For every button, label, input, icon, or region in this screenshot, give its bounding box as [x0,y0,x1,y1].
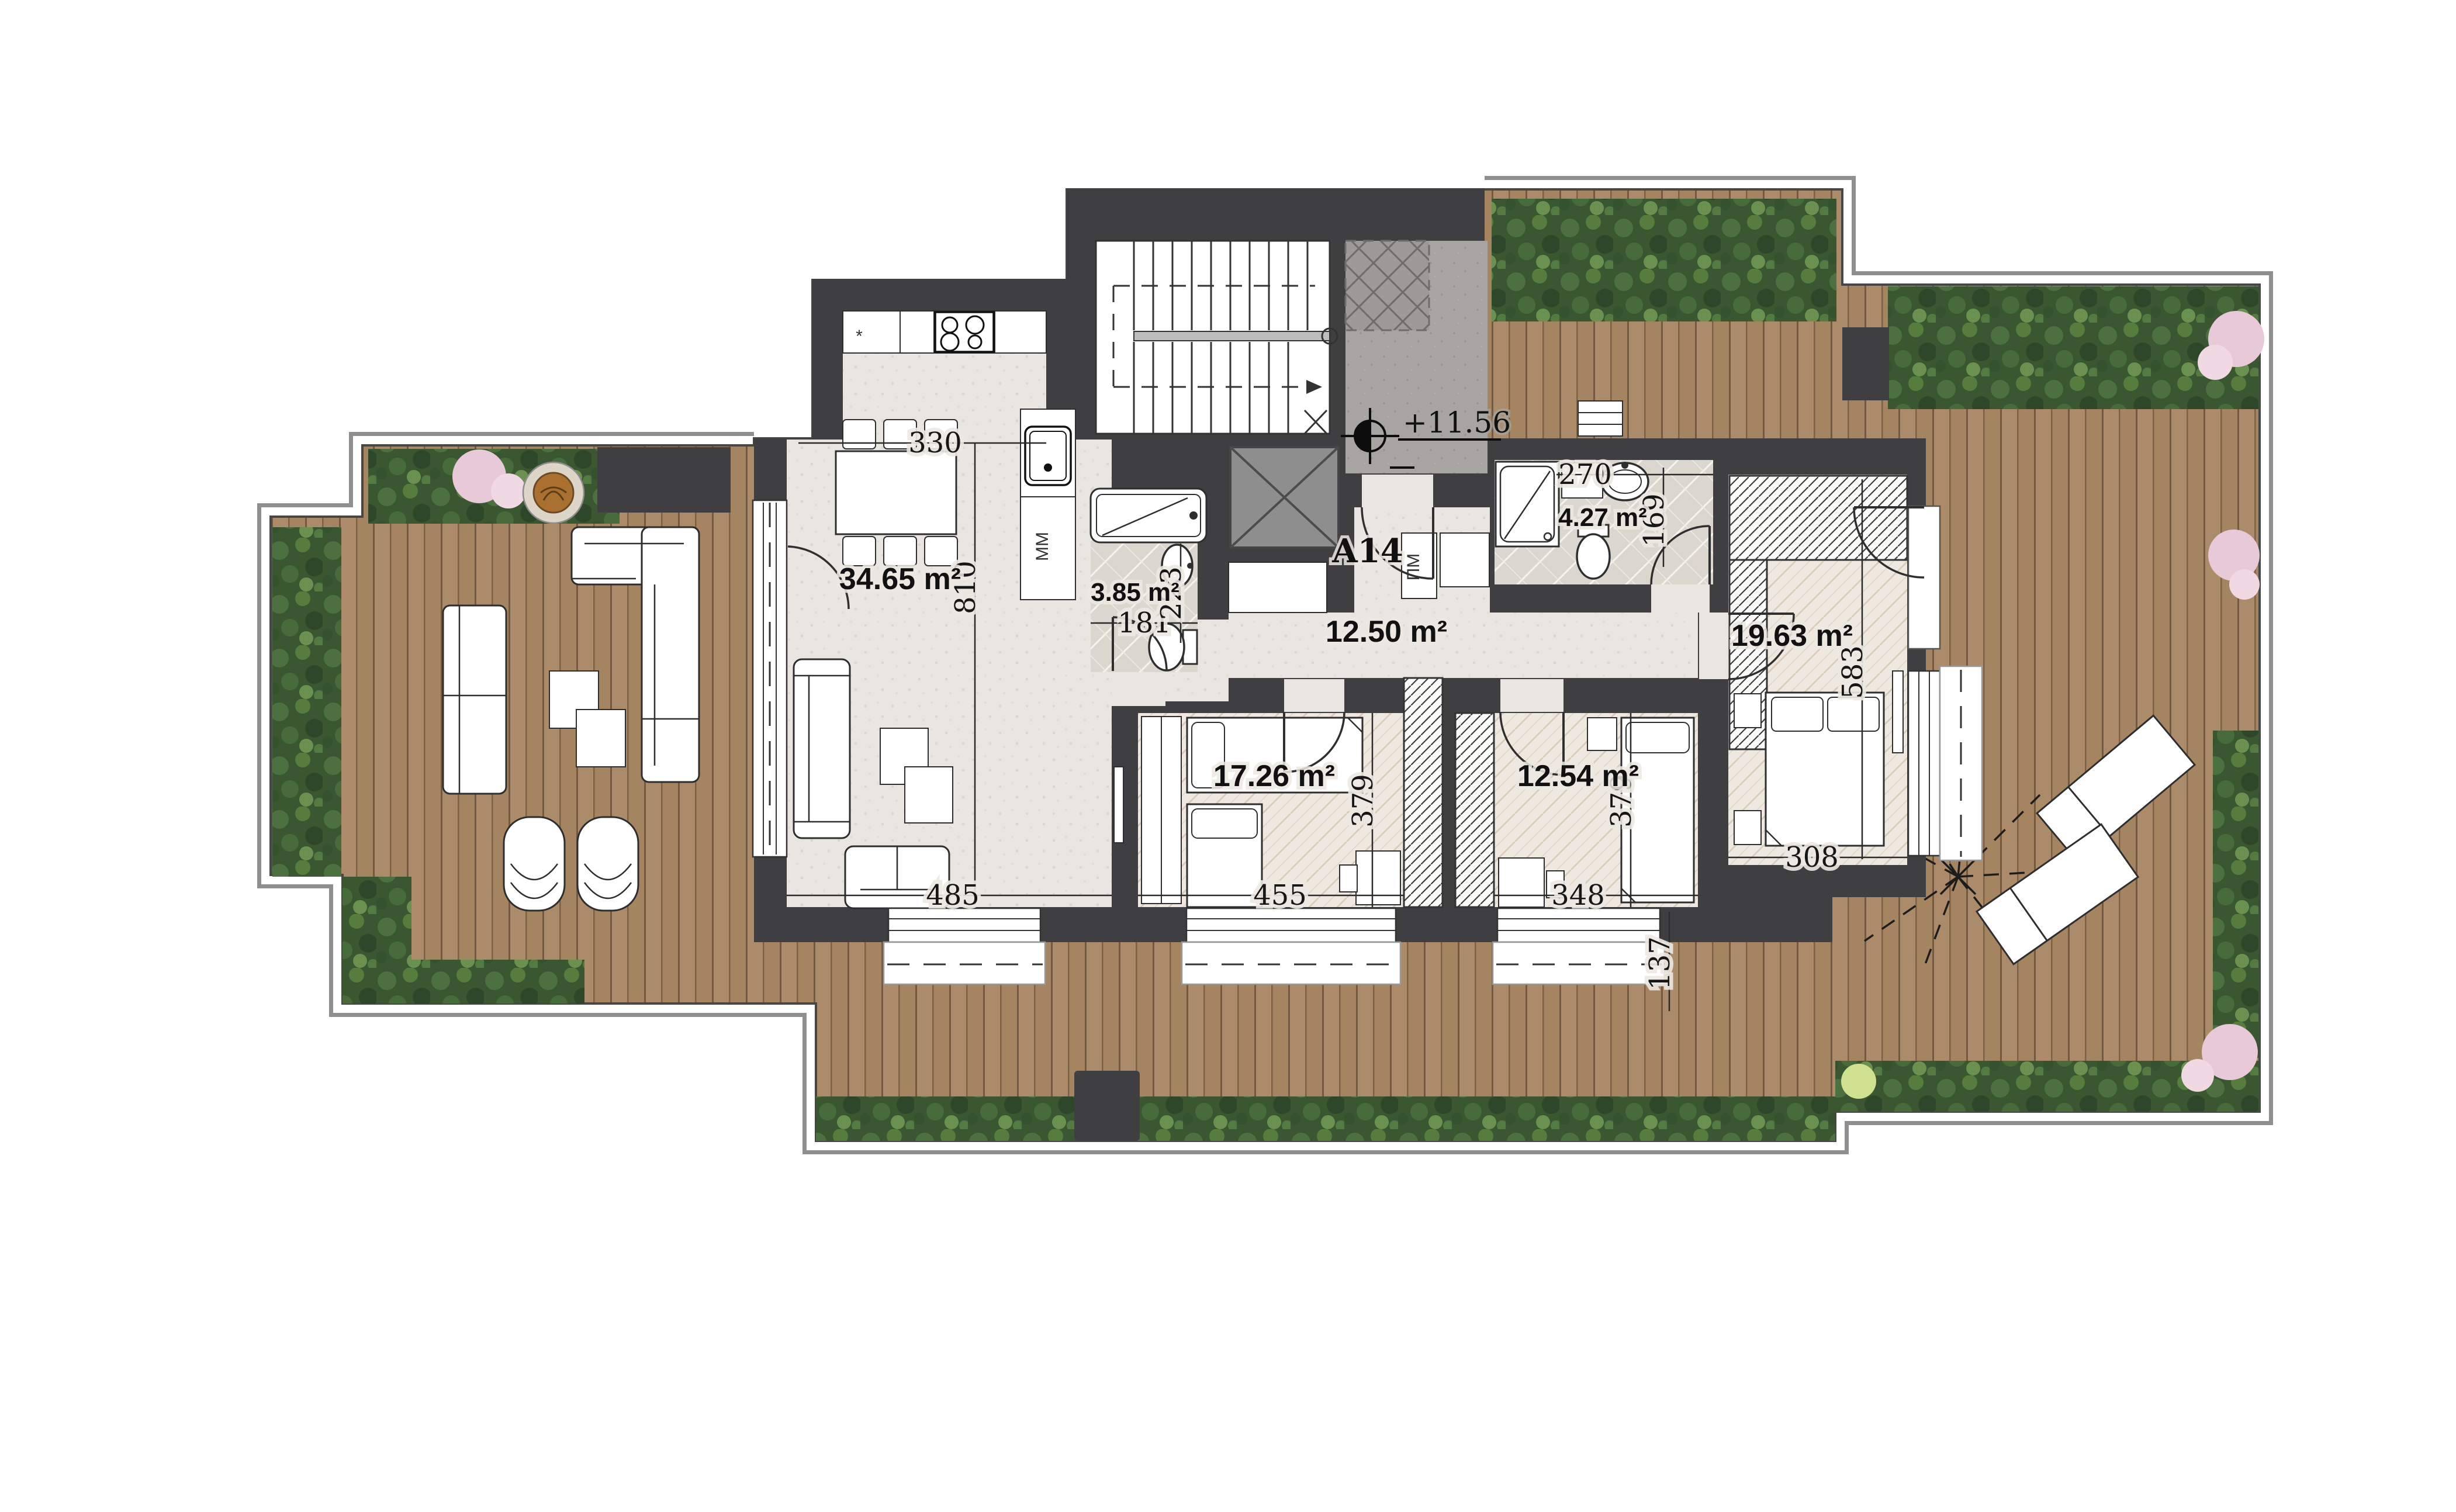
elevator [1230,447,1338,548]
label-bath1-area: 3.85 m² [1091,578,1179,607]
label-bath2-area: 4.27 m² [1558,503,1647,532]
bath2-toilet [1577,525,1610,579]
tv-panel [1114,767,1123,843]
stove-mark: * [856,327,863,346]
dim-master-width: 308 [1785,841,1839,874]
hedge-left-bottom [343,877,411,1004]
lounge-chair-1 [504,817,565,911]
window-bedroom1 [1182,908,1400,984]
hedge-left-corner [409,960,584,1004]
label-bed1-area: 17.26 m² [1213,759,1335,793]
elevator-closet [1229,562,1327,613]
hedge-top-right [1888,286,2260,409]
dishwasher-label: ММ [1033,532,1052,561]
floor-plan-drawing: +11.56 * ММ [0,0,2456,1512]
wardrobe-master-top [1729,476,1907,560]
label-bed2-area: 12.54 m² [1517,759,1639,793]
deck-bench [1578,401,1623,436]
kitchen-sink [1025,427,1071,485]
dim-living-width: 485 [926,879,980,912]
living-sofa-large [794,659,850,838]
bathtub [1091,489,1206,542]
living-coffee-table-2 [905,767,953,823]
shower [1496,462,1559,546]
window-bedroom2 [1493,908,1665,984]
lounge-chair-2 [577,817,638,911]
dim-bed1-width: 455 [1253,879,1307,912]
wardrobe-bed1 [1404,678,1443,907]
hall-closet [1440,533,1489,587]
label-apartment: A14 [1331,532,1403,570]
dim-kitchen-width: 330 [908,427,962,459]
shaft-hatch [1345,241,1429,330]
kitchen-counter: * [843,311,1046,353]
elevation-label: +11.56 [1403,406,1511,440]
dim-window-offset: 137 [1644,936,1676,990]
fire-pit [523,462,584,523]
dim-master-depth: 583 [1836,645,1869,699]
dim-bed1-depth: 379 [1347,774,1379,828]
label-hall-area: 12.50 m² [1326,615,1447,649]
hedge-left [272,527,341,877]
kitchen-appliance-column: ММ [1021,409,1075,600]
label-living-area: 34.65 m² [839,562,961,596]
outdoor-sofa-2seat [443,606,506,794]
dim-bed2-width: 348 [1551,879,1605,912]
window-master [1908,666,1982,860]
dim-bath2-width: 270 [1558,458,1612,491]
outdoor-coffee-table-2 [576,710,625,767]
floor-plan-page: +11.56 * ММ [0,0,2456,1512]
hedge-top-middle [1492,199,1836,321]
hedge-right [2213,731,2260,1058]
hedge-bottom [816,1096,1835,1141]
wardrobe-bed2 [1455,713,1494,907]
window-living [884,908,1045,984]
stove [935,312,994,352]
label-master-area: 19.63 m² [1731,619,1853,653]
